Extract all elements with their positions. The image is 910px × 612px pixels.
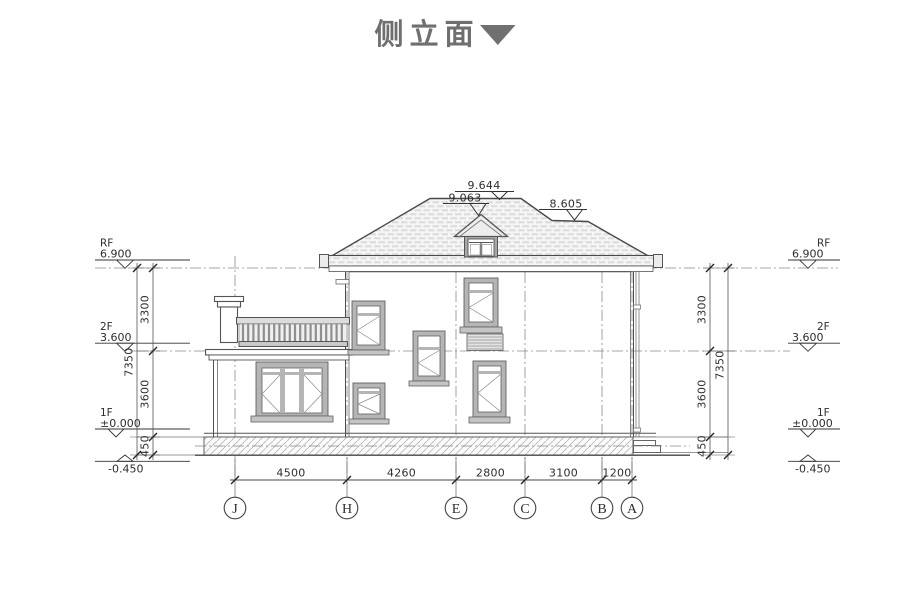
rf-value-left: 6.900: [100, 248, 132, 261]
f2-value-left: 3.600: [100, 331, 132, 344]
dim-b-a: 1200: [602, 467, 631, 480]
dim-upper-left: 3300: [139, 295, 152, 324]
window-stair: [409, 331, 449, 386]
grid-bubble-h: H: [342, 502, 352, 517]
window-1f-right: [469, 361, 510, 423]
side-elevation-value: 8.605: [550, 198, 583, 211]
building: [137, 199, 728, 456]
window-1f-left: [251, 362, 333, 422]
window-1f-middle: [349, 383, 389, 424]
f2-value-right: 3.600: [792, 331, 824, 344]
dormer-elevation-value: 9.063: [449, 192, 482, 205]
rf-value-right: 6.900: [792, 248, 824, 261]
dim-plinth-left: 450: [139, 435, 152, 457]
grid-bubble-c: C: [520, 502, 529, 517]
f1-value-left: ±0.000: [100, 417, 141, 430]
page-title: 侧立面: [374, 17, 479, 51]
dim-plinth-right: 450: [696, 435, 709, 457]
window-2f-right: [460, 278, 502, 333]
downpipe: [634, 272, 641, 437]
dim-e-c: 2800: [476, 467, 505, 480]
dim-total-right: 7350: [714, 350, 727, 379]
balcony: [206, 297, 353, 361]
exterior-step: [634, 441, 661, 453]
grid-bubble-e: E: [452, 502, 461, 517]
grid-bubbles: J H E C B A: [224, 484, 643, 519]
elevation-drawing-page: 侧立面: [0, 0, 910, 612]
right-level-markers: RF 6.900 2F 3.600 1F ±0.000 -0.450: [788, 238, 840, 476]
dim-j-h: 4500: [276, 467, 305, 480]
window-2f-left: [348, 301, 389, 355]
drawing-title: 侧立面: [374, 17, 515, 51]
louver-vent: [467, 334, 503, 351]
bottom-dimensions: 4500 4260 2800 3100 1200 J H E C B A: [224, 457, 643, 519]
title-triangle-icon: [480, 25, 516, 45]
dim-lower-left: 3600: [139, 379, 152, 408]
dim-lower-right: 3600: [696, 379, 709, 408]
grid-bubble-b: B: [597, 502, 606, 517]
f1-value-right: ±0.000: [792, 417, 833, 430]
plinth: [195, 433, 690, 455]
eave-trim: [329, 266, 653, 272]
dim-total-left: 7350: [123, 347, 136, 376]
grid-bubble-a: A: [627, 502, 638, 517]
balustrade: [237, 318, 350, 347]
grid-bubble-j: J: [232, 502, 238, 517]
dim-h-e: 4260: [387, 467, 416, 480]
right-vertical-dimensions: 3300 3600 450 7350: [696, 263, 736, 460]
ground-value-right: -0.450: [795, 463, 830, 476]
dim-c-b: 3100: [549, 467, 578, 480]
balcony-slab: [206, 350, 353, 361]
dim-upper-right: 3300: [696, 295, 709, 324]
ridge-elevation-value: 9.644: [468, 179, 501, 192]
left-vertical-dimensions: 3300 3600 450 7350: [123, 263, 161, 460]
ground-value-left: -0.450: [108, 463, 143, 476]
